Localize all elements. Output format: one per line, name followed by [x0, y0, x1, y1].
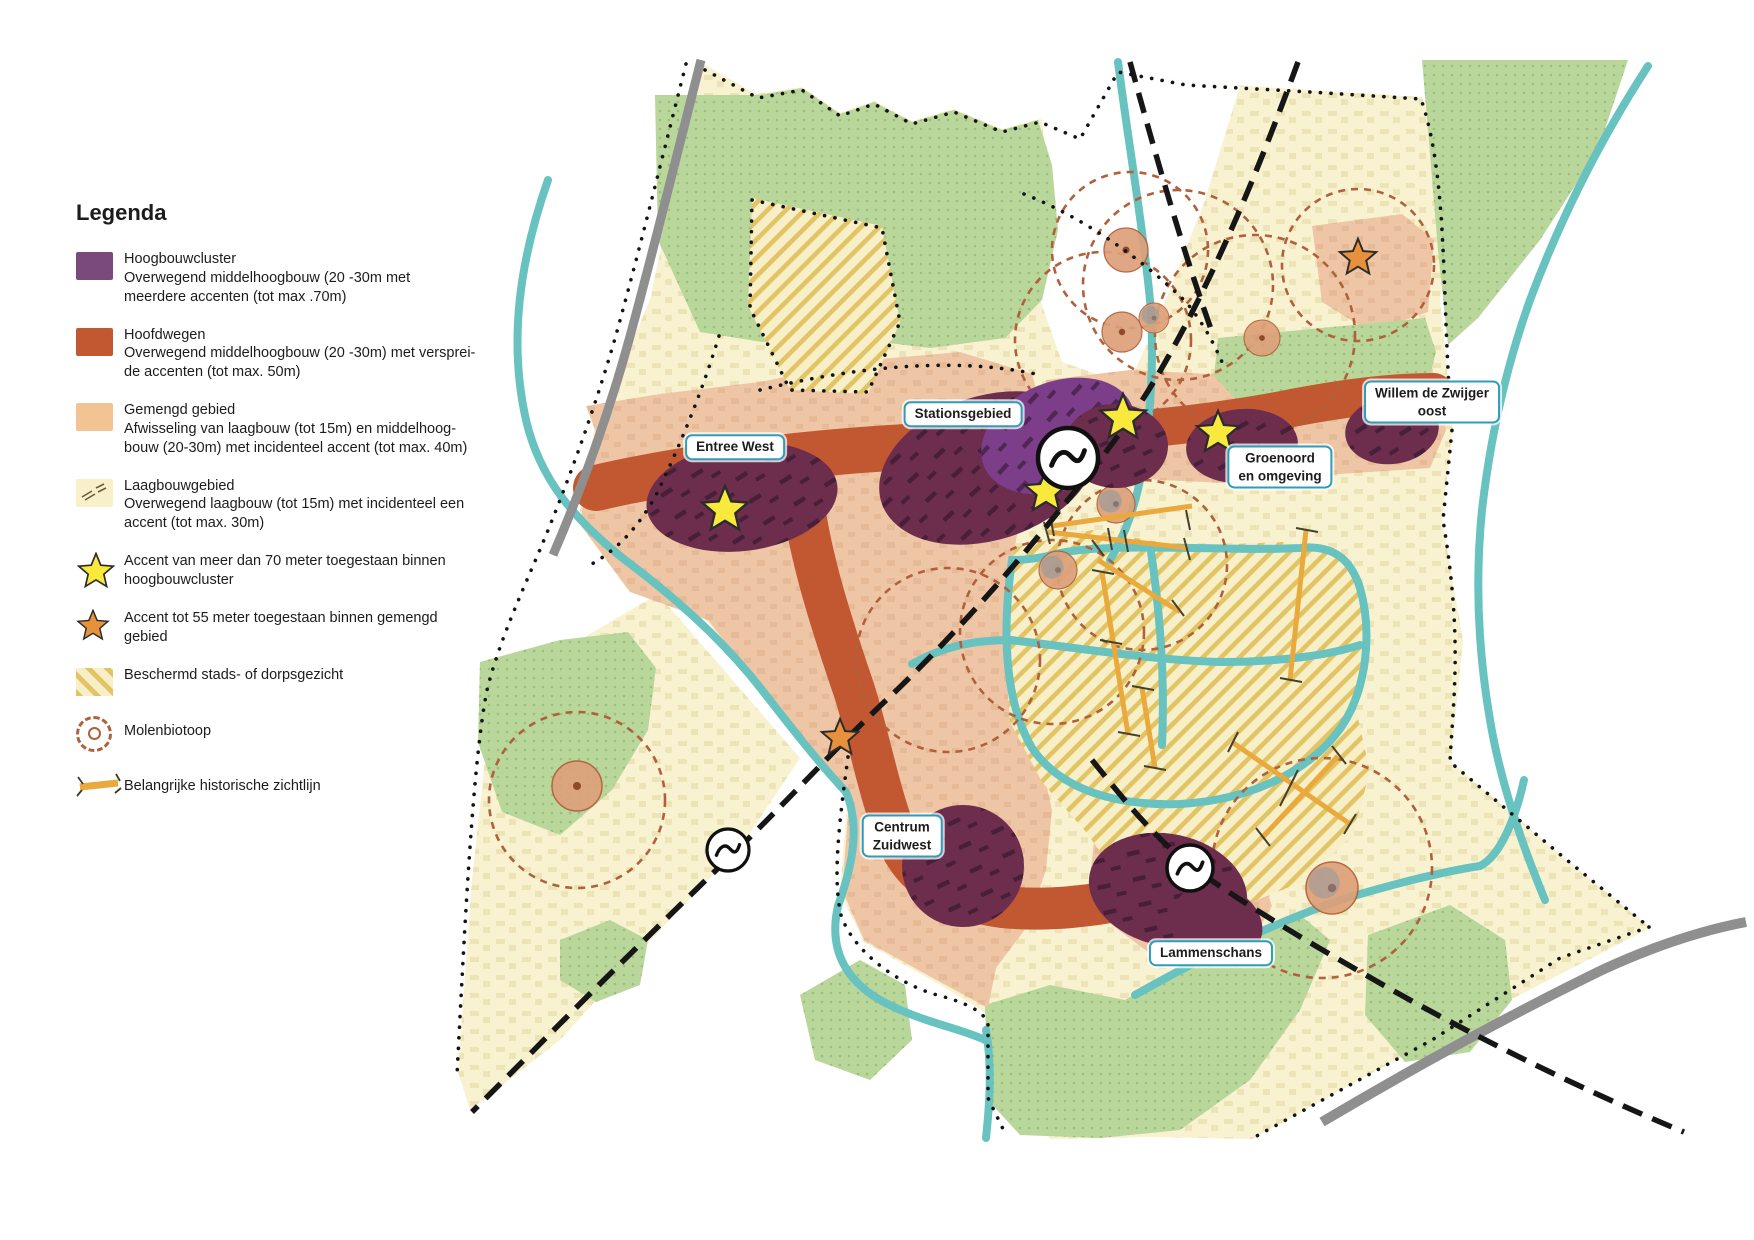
- legend-title: Legenda: [76, 200, 508, 226]
- legend-item-label: Gemengd gebied Afwisseling van laagbouw …: [124, 401, 467, 458]
- legend-item-label: Accent tot 55 meter toegestaan binnen ge…: [124, 609, 438, 647]
- hoofdwegen-swatch: [76, 328, 113, 356]
- ns-station-icon: [707, 829, 749, 871]
- area-label-centrum-zuidwest: Centrum Zuidwest: [862, 814, 943, 857]
- legend-item-label: Hoofdwegen Overwegend middelhoogbouw (20…: [124, 326, 475, 383]
- yellow-star-icon: [76, 552, 116, 590]
- legend-item-label: Accent van meer dan 70 meter toegestaan …: [124, 552, 446, 590]
- area-label-groenoord: Groenoord en omgeving: [1227, 445, 1332, 488]
- legend-item-label: Beschermd stads- of dorpsgezicht: [124, 666, 343, 685]
- orange-star-icon: [76, 609, 110, 642]
- area-label-lammenschans: Lammenschans: [1149, 940, 1273, 966]
- beschermd-stadsgezicht-swatch: [76, 668, 113, 696]
- ns-station-icon: [1167, 845, 1213, 891]
- legend-item-accent-70m: Accent van meer dan 70 meter toegestaan …: [76, 552, 508, 590]
- legend-item-label: Hoogbouwcluster Overwegend middelhoogbou…: [124, 250, 410, 307]
- legend-item-laagbouwgebied: Laagbouwgebied Overwegend laagbouw (tot …: [76, 477, 508, 534]
- ns-station-icon: [1038, 428, 1098, 488]
- laagbouwgebied-swatch: [76, 479, 113, 507]
- legend-item-hoofdwegen: Hoofdwegen Overwegend middelhoogbouw (20…: [76, 326, 508, 383]
- legend-item-hoogbouwcluster: Hoogbouwcluster Overwegend middelhoogbou…: [76, 250, 508, 307]
- legend-item-gemengd-gebied: Gemengd gebied Afwisseling van laagbouw …: [76, 401, 508, 458]
- sightline-icon: [76, 771, 122, 805]
- legend-item-label: Molenbiotoop: [124, 722, 211, 741]
- legend-item-historische-zichtlijn: Belangrijke historische zichtlijn: [76, 771, 508, 805]
- legend-item-accent-55m: Accent tot 55 meter toegestaan binnen ge…: [76, 609, 508, 647]
- area-label-entree-west: Entree West: [685, 434, 785, 460]
- legend-item-label: Laagbouwgebied Overwegend laagbouw (tot …: [124, 477, 464, 534]
- urban-height-vision-map: Entree West Stationsgebied Groenoord en …: [0, 0, 1754, 1240]
- legend-item-beschermd-stadsgezicht: Beschermd stads- of dorpsgezicht: [76, 666, 508, 696]
- area-label-willem-de-zwijger-oost: Willem de Zwijger oost: [1364, 380, 1500, 423]
- legend: Legenda Hoogbouwcluster Overwegend midde…: [76, 200, 508, 824]
- hoogbouwcluster-swatch: [76, 252, 113, 280]
- legend-item-molenbiotoop: Molenbiotoop: [76, 715, 508, 752]
- area-label-stationsgebied: Stationsgebied: [904, 401, 1023, 427]
- molenbiotoop-icon: [76, 716, 112, 752]
- gemengd-gebied-swatch: [76, 403, 113, 431]
- legend-item-label: Belangrijke historische zichtlijn: [124, 777, 321, 796]
